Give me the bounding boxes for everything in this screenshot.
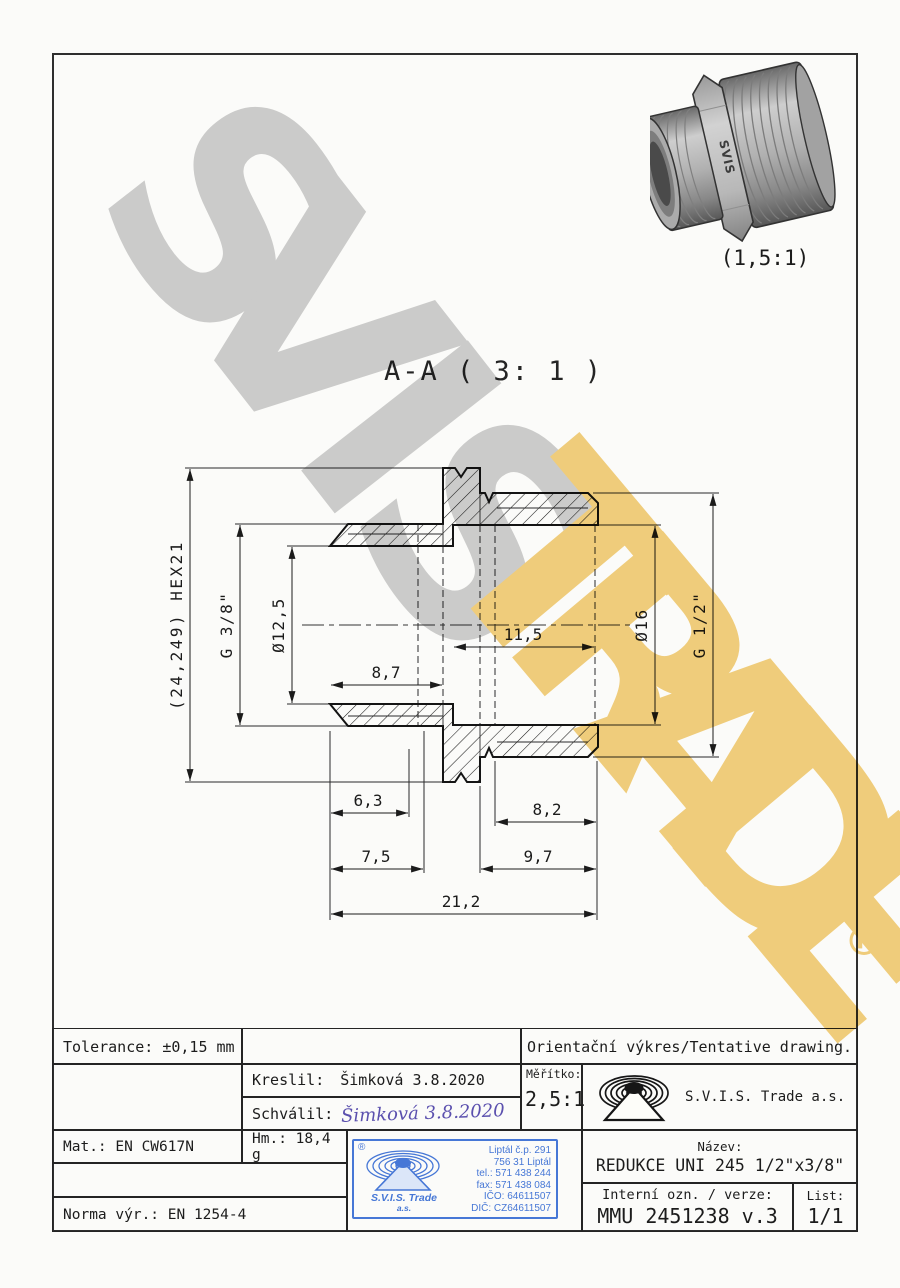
name-label: Název:: [697, 1139, 742, 1154]
scale-value: 2,5:1: [525, 1087, 585, 1111]
cell-standard: Norma výr.: EN 1254-4: [52, 1197, 347, 1232]
tentative-note: Orientační výkres/Tentative drawing.: [527, 1038, 852, 1056]
cell-approved-by: Schválil: Šimková 3.8.2020: [241, 1097, 521, 1130]
name-value: REDUKCE UNI 245 1/2"x3/8": [596, 1156, 844, 1175]
dim-thread-large: G 1/2": [690, 592, 709, 659]
company-stamp: ® S.V.I.S. Trade a.s. Liptál č.p. 291 75…: [352, 1139, 558, 1219]
cell-internal-id: Interní ozn. / verze: MMU 2451238 v.3: [582, 1183, 793, 1232]
section-view-drawing: 11,5 8,7 6,3 8,2 7,5 9,7 21,2 (24,249) H…: [150, 430, 740, 940]
cell-weight: Hm.: 18,4 g: [241, 1130, 347, 1163]
cell-sheet: List: 1/1: [793, 1183, 858, 1232]
approved-label: Schválil:: [242, 1105, 333, 1123]
cell-empty-left: [52, 1063, 243, 1130]
company-logo: [597, 1070, 671, 1124]
cell-name: Název: REDUKCE UNI 245 1/2"x3/8": [582, 1130, 858, 1183]
stamp-logo: [364, 1150, 442, 1192]
sheet-label: List:: [807, 1188, 845, 1203]
dim-total-length: 21,2: [442, 892, 481, 911]
dim-thread-small: G 3/8": [217, 592, 236, 659]
stamp-company-line1: S.V.I.S. Trade: [358, 1193, 450, 1203]
material-text: Mat.: EN CW617N: [53, 1139, 194, 1155]
dim-overall-hex: (24,249) HEX21: [167, 540, 186, 710]
dim-bore-small: Ø12,5: [269, 597, 288, 653]
dim-bore-large: Ø16: [632, 608, 651, 641]
dim-depth-small: 8,7: [372, 663, 401, 682]
cell-empty-bottom: [52, 1163, 347, 1197]
stamp-company-line2: a.s.: [358, 1203, 450, 1213]
sheet-stack: List: 1/1: [794, 1188, 857, 1228]
cell-tolerance: Tolerance: ±0,15 mm: [52, 1028, 243, 1065]
stamp-company-name: S.V.I.S. Trade a.s.: [358, 1193, 450, 1213]
dim-7-5: 7,5: [362, 847, 391, 866]
standard-text: Norma výr.: EN 1254-4: [53, 1207, 246, 1223]
weight-text: Hm.: 18,4 g: [242, 1131, 346, 1163]
drawn-value: Šimková 3.8.2020: [340, 1071, 485, 1089]
stamp-address: Liptál č.p. 291 756 31 Liptál tel.: 571 …: [471, 1145, 551, 1215]
cell-material: Mat.: EN CW617N: [52, 1130, 243, 1163]
tolerance-text: Tolerance: ±0,15 mm: [53, 1038, 235, 1056]
stamp-address-line: IČO: 64611507: [471, 1191, 551, 1203]
internal-id-stack: Interní ozn. / verze: MMU 2451238 v.3: [583, 1187, 792, 1228]
cell-empty-top: [241, 1028, 521, 1065]
sheet-value: 1/1: [807, 1204, 843, 1228]
section-title: A-A ( 3: 1 ): [384, 356, 603, 387]
internal-id-label: Interní ozn. / verze:: [602, 1187, 773, 1203]
name-stack: Název: REDUKCE UNI 245 1/2"x3/8": [583, 1138, 857, 1175]
stamp-address-line: DIČ: CZ64611507: [471, 1203, 551, 1215]
dim-6-3: 6,3: [354, 791, 383, 810]
part-3d-render: SVIS: [650, 55, 850, 265]
scale-label: Měřítko:: [526, 1067, 581, 1081]
stamp-address-line: tel.: 571 438 244: [471, 1168, 551, 1180]
dim-9-7: 9,7: [524, 847, 553, 866]
stamp-address-line: fax: 571 438 084: [471, 1180, 551, 1192]
dim-8-2: 8,2: [533, 800, 562, 819]
stamp-address-line: 756 31 Liptál: [471, 1157, 551, 1169]
stamp-address-line: Liptál č.p. 291: [471, 1145, 551, 1157]
dim-depth-large: 11,5: [504, 625, 543, 644]
approved-signature: Šimková 3.8.2020: [341, 1100, 505, 1127]
internal-id-value: MMU 2451238 v.3: [597, 1204, 778, 1228]
cell-drawn-by: Kreslil: Šimková 3.8.2020: [241, 1063, 521, 1097]
company-name: S.V.I.S. Trade a.s.: [685, 1089, 845, 1105]
drawn-label: Kreslil:: [242, 1071, 324, 1089]
cell-note: Orientační výkres/Tentative drawing.: [521, 1028, 858, 1065]
cell-company: S.V.I.S. Trade a.s.: [582, 1063, 858, 1130]
render-scale-caption: (1,5:1): [700, 246, 830, 270]
drawing-sheet: 11,5 8,7 6,3 8,2 7,5 9,7 21,2 (24,249) H…: [0, 0, 900, 1288]
cell-scale: Měřítko: 2,5:1: [521, 1063, 582, 1130]
